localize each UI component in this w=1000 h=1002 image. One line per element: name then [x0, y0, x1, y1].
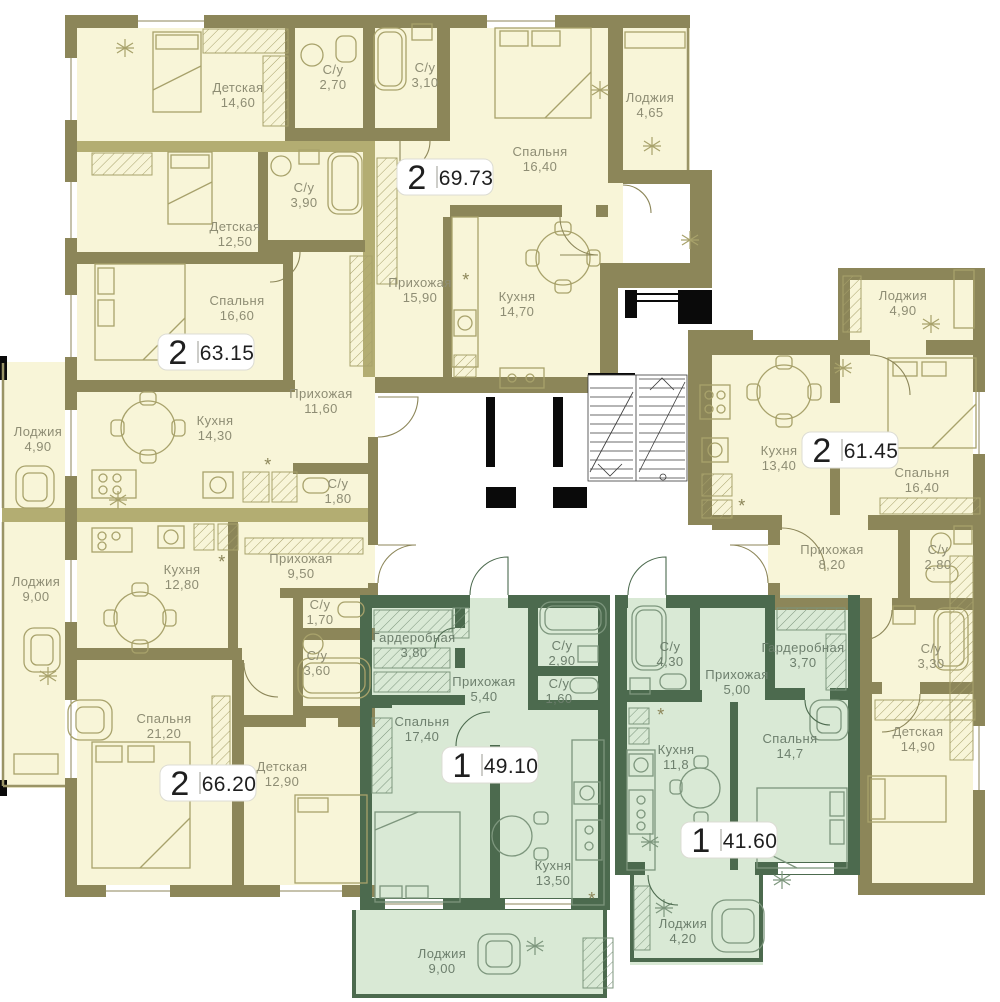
room-name: Прихожая: [800, 542, 863, 557]
room-name: Детская: [257, 759, 308, 774]
room-name: Лоджия: [879, 288, 927, 303]
vent-shaft-icon: [629, 708, 649, 724]
room-label: Кухня14,30: [197, 413, 234, 443]
room-name: С/у: [307, 648, 328, 663]
apartment-badge-41-60[interactable]: 141.60: [681, 822, 777, 860]
room-label: Кухня14,70: [499, 289, 536, 319]
room-label: С/у4,30: [657, 639, 684, 669]
vent-shaft-icon: [272, 472, 297, 502]
room-area: 12,50: [218, 234, 253, 249]
room-name: Детская: [893, 724, 944, 739]
wardrobe-icon: [880, 498, 980, 514]
wardrobe-icon: [203, 29, 288, 53]
room-area: 1,80: [325, 491, 352, 506]
room-area: 13,40: [762, 458, 797, 473]
room-area: 11,60: [304, 401, 338, 416]
room-area: 2,90: [549, 653, 576, 668]
room-name: Лоджия: [626, 90, 674, 105]
apartment-badge-63-15[interactable]: 263.15: [158, 334, 254, 372]
wardrobe-icon: [777, 608, 845, 630]
room-name: Прихожая: [388, 275, 451, 290]
room-name: С/у: [928, 542, 949, 557]
vent-symbol-icon: *: [588, 889, 595, 909]
vent-shaft-icon: [194, 524, 214, 550]
wardrobe-icon: [374, 610, 452, 632]
badge-rooms-count: 2: [168, 334, 187, 372]
floor-plan: ****** Детская14,60С/у2,70С/у3,10Спальня…: [0, 0, 1000, 1002]
wardrobe-icon: [374, 672, 450, 692]
room-label: С/у1,80: [325, 476, 352, 506]
room-area: 5,40: [471, 689, 498, 704]
room-area: 14,90: [901, 739, 936, 754]
room-label: С/у2,80: [925, 542, 952, 572]
room-area: 16,40: [523, 159, 558, 174]
room-name: Прихожая: [705, 667, 768, 682]
room-area: 2,70: [320, 77, 347, 92]
badge-area: 61.45: [844, 440, 899, 463]
badge-rooms-count: 2: [812, 432, 831, 470]
vent-shaft-icon: [218, 524, 238, 550]
room-area: 11,8: [663, 757, 689, 772]
room-area: 4,90: [890, 303, 917, 318]
room-name: С/у: [921, 641, 942, 656]
room-area: 16,40: [905, 480, 940, 495]
room-name: Кухня: [499, 289, 536, 304]
room-name: Спальня: [512, 144, 567, 159]
vent-shaft-icon: [243, 472, 269, 502]
room-area: 5,00: [724, 682, 751, 697]
wardrobe-icon: [634, 886, 650, 950]
room-name: Прихожая: [452, 674, 515, 689]
room-area: 17,40: [405, 729, 440, 744]
room-name: Гардеробная: [372, 630, 455, 645]
room-area: 3,70: [790, 655, 817, 670]
apartment-badge-66-20[interactable]: 266.20: [160, 765, 256, 803]
room-area: 4,30: [657, 654, 684, 669]
room-name: С/у: [328, 476, 349, 491]
vent-shaft-icon: [583, 938, 613, 988]
room-area: 4,65: [637, 105, 664, 120]
vent-symbol-icon: *: [264, 455, 271, 475]
room-area: 12,90: [265, 774, 300, 789]
vent-symbol-icon: *: [738, 496, 745, 516]
room-area: 3,80: [401, 645, 428, 660]
room-name: Детская: [210, 219, 261, 234]
room-label: С/у3,60: [304, 648, 331, 678]
room-name: Кухня: [761, 443, 798, 458]
wardrobe-icon: [263, 56, 288, 126]
badge-rooms-count: 2: [407, 159, 426, 197]
room-name: Спальня: [762, 731, 817, 746]
room-name: С/у: [549, 676, 570, 691]
wardrobe-icon: [372, 718, 392, 793]
room-name: С/у: [415, 60, 436, 75]
room-name: Лоджия: [418, 946, 466, 961]
vent-symbol-icon: *: [218, 552, 225, 572]
badge-area: 41.60: [723, 830, 778, 853]
room-name: Лоджия: [14, 424, 62, 439]
room-area: 9,00: [429, 961, 456, 976]
room-label: С/у2,90: [549, 638, 576, 668]
badge-rooms-count: 1: [691, 822, 710, 860]
staircase: [588, 375, 687, 481]
room-area: 4,20: [670, 931, 697, 946]
room-name: С/у: [660, 639, 681, 654]
room-label: С/у3,90: [291, 180, 318, 210]
room-label: С/у3,10: [412, 60, 439, 90]
wardrobe-icon: [377, 158, 397, 284]
room-name: Детская: [213, 80, 264, 95]
badge-area: 49.10: [484, 755, 539, 778]
room-area: 4,90: [25, 439, 52, 454]
room-label: С/у2,70: [320, 62, 347, 92]
room-name: Кухня: [164, 562, 201, 577]
vent-shaft-icon: [629, 728, 649, 744]
room-name: Лоджия: [12, 574, 60, 589]
badge-area: 63.15: [200, 342, 255, 365]
room-area: 8,20: [819, 557, 846, 572]
room-label: Кухня13,50: [535, 858, 572, 888]
room-area: 2,80: [925, 557, 952, 572]
room-area: 3,90: [291, 195, 318, 210]
room-name: Спальня: [136, 711, 191, 726]
wardrobe-icon: [875, 700, 975, 720]
room-name: Прихожая: [289, 386, 352, 401]
room-area: 1,60: [546, 691, 573, 706]
room-name: Спальня: [209, 293, 264, 308]
apartment-badge-49-10[interactable]: 149.10: [442, 747, 538, 785]
room-area: 9,00: [23, 589, 50, 604]
apartment-badge-69-73[interactable]: 269.73: [397, 159, 493, 197]
wardrobe-icon: [843, 276, 861, 332]
room-area: 15,90: [403, 290, 438, 305]
room-name: Спальня: [894, 465, 949, 480]
room-area: 3,60: [304, 663, 331, 678]
room-label: С/у3,30: [918, 641, 945, 671]
badge-area: 69.73: [439, 167, 494, 190]
room-name: С/у: [323, 62, 344, 77]
room-area: 21,20: [147, 726, 182, 741]
room-area: 12,80: [165, 577, 200, 592]
room-name: Спальня: [394, 714, 449, 729]
room-label: Кухня12,80: [164, 562, 201, 592]
room-name: Кухня: [658, 742, 695, 757]
room-name: С/у: [552, 638, 573, 653]
room-area: 1,70: [307, 612, 334, 627]
room-area: 14,7: [777, 746, 804, 761]
vent-shaft-icon: [454, 355, 476, 377]
badge-rooms-count: 2: [170, 765, 189, 803]
vent-symbol-icon: *: [657, 705, 664, 725]
room-label: С/у1,70: [307, 597, 334, 627]
room-label: С/у1,60: [546, 676, 573, 706]
badge-rooms-count: 1: [452, 747, 471, 785]
wardrobe-icon: [950, 556, 973, 760]
room-area: 14,30: [198, 428, 233, 443]
room-name: С/у: [310, 597, 331, 612]
room-name: Кухня: [535, 858, 572, 873]
wardrobe-icon: [92, 153, 152, 175]
room-label: Кухня13,40: [761, 443, 798, 473]
room-name: Кухня: [197, 413, 234, 428]
room-area: 3,10: [412, 75, 439, 90]
vent-shaft-icon: [702, 500, 732, 518]
room-area: 16,60: [220, 308, 255, 323]
room-label: Кухня11,8: [658, 742, 695, 772]
vent-shaft-icon: [702, 474, 732, 496]
room-name: С/у: [294, 180, 315, 195]
room-area: 9,50: [288, 566, 315, 581]
vent-symbol-icon: *: [462, 270, 469, 290]
room-area: 13,50: [536, 873, 571, 888]
room-area: 14,70: [500, 304, 535, 319]
room-name: Прихожая: [269, 551, 332, 566]
apartment-badge-61-45[interactable]: 261.45: [802, 432, 898, 470]
room-area: 3,30: [918, 656, 945, 671]
wardrobe-icon: [350, 256, 372, 366]
room-name: Лоджия: [659, 916, 707, 931]
room-area: 14,60: [221, 95, 256, 110]
room-name: Гардеробная: [761, 640, 844, 655]
badge-area: 66.20: [202, 773, 257, 796]
